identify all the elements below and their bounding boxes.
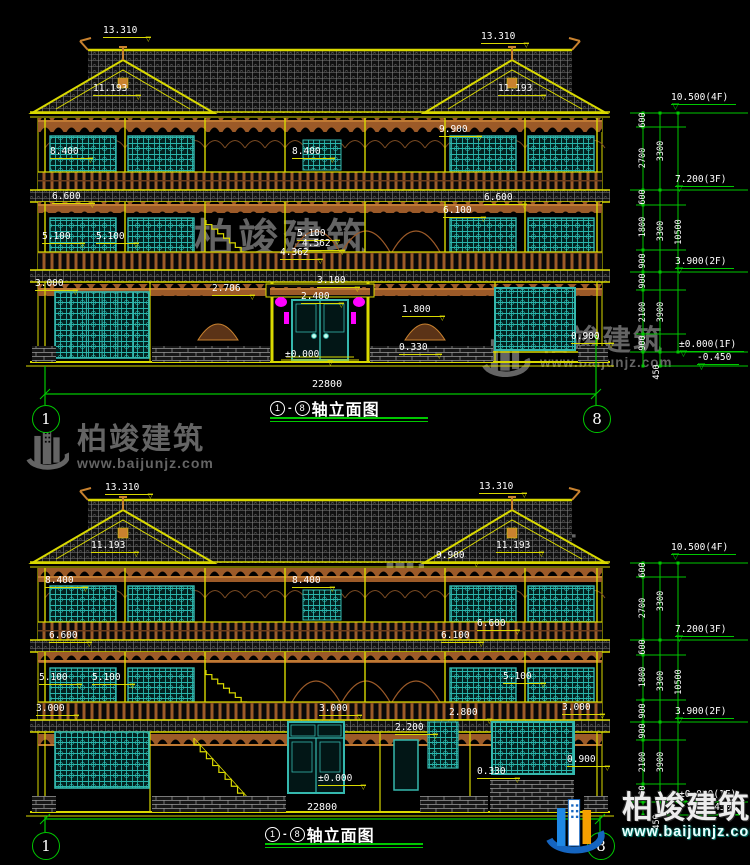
leader-triangle-icon: ▽ <box>136 94 141 101</box>
dim-text: 6.600 <box>49 630 78 641</box>
dim-text: 1.800 <box>402 304 431 315</box>
dim-text: 10.500(4F) <box>671 542 728 553</box>
dim-text: 0.330 <box>399 342 428 353</box>
dim-text: 13.310 <box>105 482 139 493</box>
leader-triangle-icon: ▽ <box>680 350 687 359</box>
vertical-dim-text: 3300 <box>656 591 666 611</box>
leader-triangle-icon: ▽ <box>77 683 82 690</box>
dim-label: 13.310▽ <box>105 483 153 495</box>
dim-text: 5.100 <box>503 671 532 682</box>
brand-logo-icon <box>534 792 614 862</box>
title-underline <box>265 843 423 845</box>
dim-text: 9.900 <box>436 550 465 561</box>
dim-text: 8.400 <box>292 146 321 157</box>
overall-dimension: 22800 <box>312 379 342 390</box>
dim-text: 3.000 <box>319 703 348 714</box>
dim-label: 13.310▽ <box>103 26 151 38</box>
dim-label: 2.706▽ <box>212 284 255 296</box>
leader-triangle-icon: ▽ <box>676 717 683 726</box>
dim-text: 2.800 <box>449 707 478 718</box>
dim-text: 6.100 <box>443 205 472 216</box>
leader-triangle-icon: ▽ <box>605 765 610 772</box>
vertical-dim-text: 900 <box>638 273 648 288</box>
leader-triangle-icon: ▽ <box>328 360 333 367</box>
axis-ref-icon: 1 <box>270 401 285 416</box>
dim-text: 3.000 <box>35 278 64 289</box>
leader-triangle-icon: ▽ <box>134 551 139 558</box>
dim-text: 8.400 <box>50 146 79 157</box>
dim-label: 5.100▽ <box>96 232 139 244</box>
leader-triangle-icon: ▽ <box>73 289 78 296</box>
vertical-dim-text: 2100 <box>638 302 648 322</box>
dim-label: 11.193▽ <box>93 84 141 96</box>
dim-text: 0.900 <box>567 754 596 765</box>
dim-text: 9.900 <box>439 124 468 135</box>
dim-text: 3.000 <box>562 702 591 713</box>
dim-label: 5.100▽ <box>42 232 85 244</box>
leader-triangle-icon: ▽ <box>357 714 362 721</box>
leader-triangle-icon: ▽ <box>522 492 527 499</box>
dim-text: 6.600 <box>484 192 513 203</box>
dim-label: 3.100▽ <box>317 276 360 288</box>
dim-label: 6.100▽ <box>443 206 486 218</box>
leader-triangle-icon: ▽ <box>515 777 520 784</box>
dim-text: 0.900 <box>571 331 600 342</box>
dim-text: 6.600 <box>52 191 81 202</box>
dim-text: 8.400 <box>292 575 321 586</box>
dim-label: 8.400▽ <box>292 147 335 159</box>
level-flag: ±0.000(1F)▽ <box>679 340 744 352</box>
leader-triangle-icon: ▽ <box>90 202 95 209</box>
vertical-dim-text: 900 <box>638 723 648 738</box>
dim-text: 5.100 <box>39 672 68 683</box>
vertical-dim-text: 10500 <box>674 219 684 245</box>
vertical-dim-text: 1800 <box>638 217 648 237</box>
dim-text: 3.100 <box>317 275 346 286</box>
axis-ref-icon: 8 <box>290 827 305 842</box>
dim-label: 5.100▽ <box>503 672 546 684</box>
leader-triangle-icon: ▽ <box>83 586 88 593</box>
leader-triangle-icon: ▽ <box>524 42 529 49</box>
dim-text: 2.400 <box>301 291 330 302</box>
dim-label: 5.100▽ <box>92 673 135 685</box>
leader-triangle-icon: ▽ <box>318 258 323 265</box>
leader-triangle-icon: ▽ <box>676 185 683 194</box>
vertical-dim-text: 900 <box>638 335 648 350</box>
dim-text: 13.310 <box>481 31 515 42</box>
dim-label: 11.193▽ <box>496 541 544 553</box>
dim-label: 9.900▽ <box>439 125 482 137</box>
vertical-dim-text: 600 <box>638 562 648 577</box>
leader-triangle-icon: ▽ <box>440 315 445 322</box>
vertical-dim-text: 3900 <box>656 302 666 322</box>
dim-label: 3.000▽ <box>36 704 79 716</box>
leader-triangle-icon: ▽ <box>250 294 255 301</box>
leader-triangle-icon: ▽ <box>676 635 683 644</box>
overall-dimension: 22800 <box>307 802 337 813</box>
leader-triangle-icon: ▽ <box>361 784 366 791</box>
vertical-dim-text: 600 <box>638 112 648 127</box>
dim-label: 6.100▽ <box>441 631 484 643</box>
vertical-dim-text: 3300 <box>656 671 666 691</box>
level-flag: 3.900(2F)▽ <box>675 257 734 269</box>
leader-triangle-icon: ▽ <box>74 714 79 721</box>
dim-text: 11.193 <box>93 83 127 94</box>
dim-label: ±0.000▽ <box>285 350 333 362</box>
leader-triangle-icon: ▽ <box>541 682 546 689</box>
leader-triangle-icon: ▽ <box>148 493 153 500</box>
leader-triangle-icon: ▽ <box>339 302 344 309</box>
leader-triangle-icon: ▽ <box>600 713 605 720</box>
dim-text: 2.200 <box>395 722 424 733</box>
leader-triangle-icon: ▽ <box>522 203 527 210</box>
vertical-dim-text: 900 <box>638 253 648 268</box>
dim-label: ±0.000▽ <box>318 774 366 786</box>
axis-bubble: 1 <box>32 405 60 433</box>
vertical-dim-text: 3900 <box>656 752 666 772</box>
dim-text: ±0.000 <box>318 773 352 784</box>
vertical-dim-text: 2700 <box>638 598 648 618</box>
dim-label: 13.310▽ <box>481 32 529 44</box>
dim-text: 6.100 <box>441 630 470 641</box>
level-flag: 10.500(4F)▽ <box>671 93 736 105</box>
vertical-dim-text: 900 <box>638 703 648 718</box>
vertical-dim-text: 10500 <box>674 669 684 695</box>
leader-triangle-icon: ▽ <box>130 683 135 690</box>
dim-text: 4.362 <box>280 247 309 258</box>
leader-triangle-icon: ▽ <box>698 363 705 372</box>
dim-label: 4.362▽ <box>280 248 323 260</box>
brand-logo: 柏竣建筑 www.baijunjz.com <box>534 792 750 862</box>
leader-triangle-icon: ▽ <box>330 586 335 593</box>
dim-text: 2.706 <box>212 283 241 294</box>
dim-text: 5.100 <box>42 231 71 242</box>
leader-triangle-icon: ▽ <box>672 553 679 562</box>
vertical-dim-text: 2700 <box>638 148 648 168</box>
leader-triangle-icon: ▽ <box>146 36 151 43</box>
dim-label: 3.000▽ <box>35 279 78 291</box>
leader-triangle-icon: ▽ <box>88 157 93 164</box>
level-flag: 10.500(4F)▽ <box>671 543 736 555</box>
leader-triangle-icon: ▽ <box>672 103 679 112</box>
dim-text: 0.330 <box>477 766 506 777</box>
title-dash: - <box>283 828 287 840</box>
dim-label: 8.400▽ <box>50 147 93 159</box>
dim-label: 3.000▽ <box>319 704 362 716</box>
dim-label: 11.193▽ <box>498 84 546 96</box>
dim-text: 3.000 <box>36 703 65 714</box>
vertical-dim-text: 1800 <box>638 667 648 687</box>
dim-label: 5.100▽ <box>39 673 82 685</box>
dim-label: 6.600▽ <box>49 631 92 643</box>
dim-label: 0.330▽ <box>399 343 442 355</box>
dim-text: 10.500(4F) <box>671 92 728 103</box>
dim-label: 2.800▽ <box>449 708 492 720</box>
title-underline <box>270 421 428 422</box>
leader-triangle-icon: ▽ <box>515 629 520 636</box>
axis-bubble: 8 <box>583 405 611 433</box>
level-flag: -0.450▽ <box>697 353 739 365</box>
dim-label: 6.600▽ <box>477 619 520 631</box>
title-underline <box>265 847 423 848</box>
dim-text: 13.310 <box>103 25 137 36</box>
axis-bubble: 1 <box>32 832 60 860</box>
leader-triangle-icon: ▽ <box>479 641 484 648</box>
leader-triangle-icon: ▽ <box>676 267 683 276</box>
title-underline <box>270 417 428 419</box>
dim-text: 11.193 <box>498 83 532 94</box>
brand-name: 柏竣建筑 <box>622 792 750 825</box>
vertical-dim-text: 600 <box>638 189 648 204</box>
leader-triangle-icon: ▽ <box>134 242 139 249</box>
dim-label: 3.000▽ <box>562 703 605 715</box>
leader-triangle-icon: ▽ <box>539 551 544 558</box>
dim-label: 9.900▽ <box>436 551 479 563</box>
leader-triangle-icon: ▽ <box>355 286 360 293</box>
axis-ref-icon: 1 <box>265 827 280 842</box>
dim-text: ±0.000 <box>285 349 319 360</box>
dim-text: 11.193 <box>496 540 530 551</box>
leader-triangle-icon: ▽ <box>477 135 482 142</box>
elevation-2-facade <box>26 488 748 832</box>
leader-triangle-icon: ▽ <box>330 157 335 164</box>
vertical-dim-text: 450 <box>652 364 662 379</box>
leader-triangle-icon: ▽ <box>433 733 438 740</box>
vertical-dim-text: 3300 <box>656 141 666 161</box>
dim-label: 13.310▽ <box>479 482 527 494</box>
level-flag: 3.900(2F)▽ <box>675 707 734 719</box>
level-flag: 7.200(3F)▽ <box>675 625 734 637</box>
leader-triangle-icon: ▽ <box>340 249 345 256</box>
vertical-dim-text: 2100 <box>638 752 648 772</box>
axis-ref-icon: 8 <box>295 401 310 416</box>
leader-triangle-icon: ▽ <box>481 216 486 223</box>
dim-label: 0.900▽ <box>571 332 614 344</box>
vertical-dim-text: 600 <box>638 639 648 654</box>
title-dash: - <box>288 402 292 414</box>
brand-url: www.baijunjz.com <box>622 825 750 840</box>
dim-label: 6.600▽ <box>484 193 527 205</box>
dim-text: 6.600 <box>477 618 506 629</box>
leader-triangle-icon: ▽ <box>437 353 442 360</box>
dim-label: 2.400▽ <box>301 292 344 304</box>
cad-viewport: 柏竣建筑 www.baijunjz.com 柏竣建筑 www.baijunjz.… <box>0 0 750 865</box>
dim-label: 0.330▽ <box>477 767 520 779</box>
dim-text: 5.100 <box>96 231 125 242</box>
leader-triangle-icon: ▽ <box>87 641 92 648</box>
dim-label: 11.193▽ <box>91 541 139 553</box>
dim-label: 6.600▽ <box>52 192 95 204</box>
leader-triangle-icon: ▽ <box>474 561 479 568</box>
dim-text: 11.193 <box>91 540 125 551</box>
dim-label: 0.900▽ <box>567 755 610 767</box>
vertical-dim-text: 3300 <box>656 221 666 241</box>
level-flag: 7.200(3F)▽ <box>675 175 734 187</box>
dim-label: 8.400▽ <box>45 576 88 588</box>
dim-label: 2.200▽ <box>395 723 438 735</box>
dim-text: 13.310 <box>479 481 513 492</box>
dim-text: 8.400 <box>45 575 74 586</box>
leader-triangle-icon: ▽ <box>80 242 85 249</box>
dim-text: ±0.000(1F) <box>679 339 736 350</box>
dim-label: 1.800▽ <box>402 305 445 317</box>
dim-label: 8.400▽ <box>292 576 335 588</box>
leader-triangle-icon: ▽ <box>541 94 546 101</box>
leader-triangle-icon: ▽ <box>487 718 492 725</box>
leader-triangle-icon: ▽ <box>609 342 614 349</box>
dim-text: 5.100 <box>92 672 121 683</box>
